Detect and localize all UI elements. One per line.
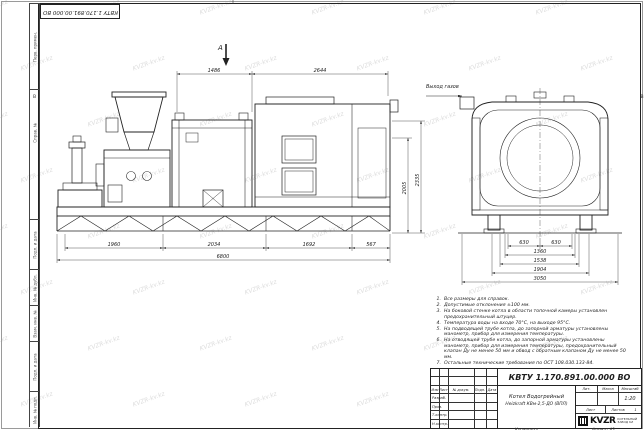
side-view <box>57 92 398 231</box>
dimension-label: 567 <box>366 242 376 248</box>
sheet-label: Лист <box>576 406 606 413</box>
technical-notes: 1.Все размеры для справок. 2.Допустимые … <box>434 297 630 367</box>
dimension-label: 6800 <box>217 254 230 260</box>
kvzr-logo-text: KVZR <box>590 416 615 426</box>
scale-label: Масштаб <box>619 386 641 393</box>
dimension-label: 1692 <box>303 242 316 248</box>
mass-label: Масса <box>598 386 619 393</box>
sheets-label: Листов <box>606 406 630 413</box>
drawing-sheet: KVZR-kv.kzKVZR-kv.kzKVZR-kv.kzKVZR-kv.kz… <box>0 0 644 430</box>
row-prov: Пров. <box>432 403 442 411</box>
lit-label: Лит. <box>576 386 598 393</box>
support-leg <box>488 215 500 230</box>
dimension-label: 1960 <box>108 242 121 248</box>
feed-pedestal <box>58 136 102 207</box>
gas-outlet-annotation: Выход газов <box>426 84 462 96</box>
gas-outlet-label: Выход газов <box>426 84 459 90</box>
kvzr-logo-icon <box>578 416 588 426</box>
note-item: 5.На подводящей трубе котла, до запорной… <box>434 327 630 338</box>
dimension-label: 2644 <box>314 68 327 74</box>
note-item: 1.Все размеры для справок. <box>434 297 630 303</box>
col-podp: Подп. <box>474 386 486 394</box>
dimension-label: 2335 <box>415 174 421 187</box>
col-data: Дата <box>486 386 498 394</box>
dimension-label: 1904 <box>534 267 547 273</box>
sheets-value: 1 <box>630 406 641 413</box>
support-leg <box>580 215 592 230</box>
middle-block <box>172 113 252 207</box>
dimension-label: 1486 <box>208 68 221 74</box>
note-item: 6.На отводящей трубе котла, до запорной … <box>434 338 630 360</box>
title-block-right: Лит. Масса Масштаб 1:20 Лист Листов 1 KV… <box>576 386 641 428</box>
title-block: Изм Лист № докум. Подп. Дата Разраб. Про… <box>430 368 642 429</box>
note-item: 7.Остальные технические требования по ОС… <box>434 361 630 367</box>
note-item: 4.Температура воды на входе 70°С, на вых… <box>434 321 630 327</box>
dimension-label: 2005 <box>402 182 408 195</box>
format-label: Формат А3 <box>592 427 615 430</box>
side-view-dimensions <box>57 71 425 263</box>
title-block-doc-number: КВТУ 1.170.891.00.000 ВО <box>498 369 641 386</box>
title-block-signature-table: Изм Лист № докум. Подп. Дата Разраб. Про… <box>431 369 498 428</box>
view-marker-a: А <box>217 44 230 66</box>
col-list: Лист <box>439 386 448 394</box>
skid-beam <box>57 207 390 216</box>
dimension-label: 630 <box>551 240 561 246</box>
title-block-product-name: Котел Водогрейный Heizkraft КВм-2,5-ДО (… <box>498 386 576 428</box>
note-item: 2.Допустимые отклонения ±100 мм. <box>434 303 630 309</box>
product-name-line1: Котел Водогрейный <box>498 394 575 400</box>
view-marker-a-label: А <box>217 44 223 52</box>
dimension-label: 2034 <box>208 242 221 248</box>
note-item: 3.На боковой стенке котла в области топо… <box>434 309 630 320</box>
dimension-label: 3050 <box>534 276 547 282</box>
dimension-label: 1360 <box>534 249 547 255</box>
row-tkontr: Т.контр. <box>432 411 448 419</box>
copied-label: Копировал <box>515 427 538 430</box>
row-razrab: Разраб. <box>432 394 446 402</box>
row-nkontr: Н.контр. <box>432 420 448 428</box>
kvzr-logo-subtext: КОТЕЛЬНЫЙ ЗАВОД KZ <box>617 418 637 425</box>
boiler-body-block <box>255 97 398 207</box>
col-dokum: № докум. <box>448 386 474 394</box>
product-name-line2: Heizkraft КВм-2,5-ДО (ВПЛ) <box>498 402 575 407</box>
end-view <box>458 88 622 238</box>
scale-value: 1:20 <box>619 393 641 406</box>
flue-outlet-stub <box>460 97 474 109</box>
burner-unit <box>96 92 170 207</box>
dimension-label: 630 <box>519 240 529 246</box>
col-izm: Изм <box>431 386 439 394</box>
dimension-label: 1538 <box>534 258 547 264</box>
